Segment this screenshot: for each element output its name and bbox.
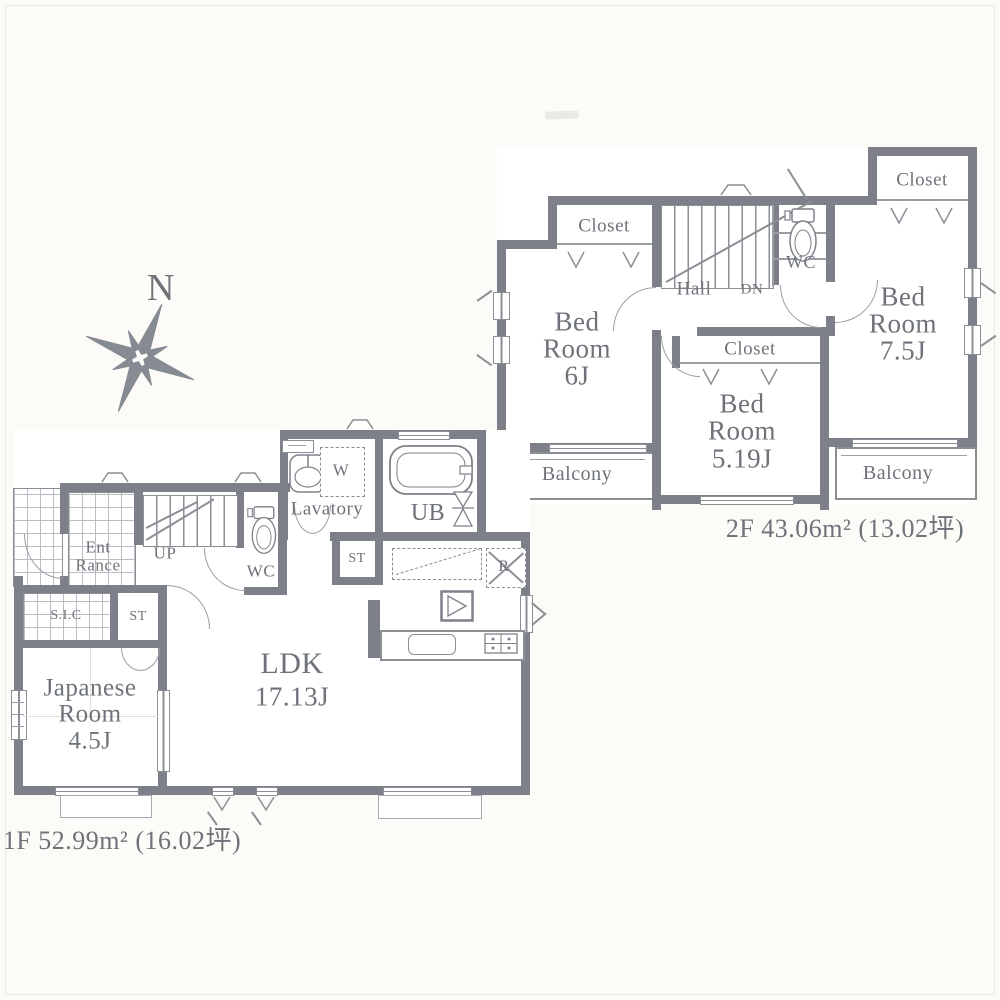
window bbox=[11, 690, 27, 740]
japanese-room-label: 4.5J bbox=[69, 729, 112, 754]
window bbox=[212, 787, 234, 796]
window-tick bbox=[207, 811, 217, 825]
kitchen-sink-icon bbox=[408, 634, 456, 655]
japanese-room-label: Japanese bbox=[44, 676, 137, 701]
wall bbox=[14, 576, 23, 690]
window bbox=[398, 431, 450, 440]
floor-1f-area-label: 1F 52.99m² (16.02坪) bbox=[3, 828, 241, 854]
vent-icon bbox=[233, 472, 263, 483]
wall bbox=[60, 483, 290, 492]
window-louver-line bbox=[12, 714, 24, 715]
bathtub-icon bbox=[388, 444, 474, 496]
vent-icon bbox=[345, 419, 375, 430]
wall bbox=[280, 430, 486, 439]
wall bbox=[368, 600, 380, 658]
window-tick-icon bbox=[211, 796, 233, 812]
sliding-door bbox=[157, 690, 170, 772]
unit-bath-label: UB bbox=[411, 501, 445, 525]
shoe-closet-label: S.I.C bbox=[50, 609, 81, 623]
toilet-icon bbox=[246, 503, 280, 559]
entrance-label: Rance bbox=[76, 557, 121, 574]
wall bbox=[244, 587, 287, 595]
window-tick bbox=[532, 613, 547, 626]
counter-icon-line bbox=[288, 445, 306, 446]
wall bbox=[60, 483, 68, 534]
storage-label: ST bbox=[348, 552, 365, 566]
vent-icon bbox=[100, 472, 130, 483]
window bbox=[256, 787, 278, 796]
window-tick-icon bbox=[255, 796, 277, 812]
lavatory-label: Lavatory bbox=[291, 500, 364, 519]
stove-icon bbox=[484, 633, 518, 654]
wall bbox=[110, 585, 118, 648]
floor-plan-page: N bbox=[0, 0, 1000, 1000]
window-louver-line bbox=[12, 726, 24, 727]
faucet-icon bbox=[452, 490, 474, 528]
storage-label: ST bbox=[129, 610, 146, 624]
window bbox=[520, 595, 533, 633]
wall bbox=[14, 640, 167, 648]
washer-label: W bbox=[333, 462, 350, 479]
dishwasher-icon bbox=[440, 590, 474, 622]
wall bbox=[280, 439, 288, 540]
floor-1f: Ent Rance UP WC S.I.C ST ST Japanese Roo… bbox=[0, 0, 1000, 1000]
japanese-room-label: Room bbox=[58, 702, 121, 727]
terrace-step bbox=[378, 795, 482, 819]
wall bbox=[14, 585, 167, 593]
terrace-step bbox=[60, 795, 152, 818]
fridge-label: R bbox=[498, 559, 509, 575]
entrance-label: Ent bbox=[85, 539, 110, 556]
wall bbox=[134, 492, 143, 545]
counter-icon bbox=[282, 440, 314, 453]
wall bbox=[330, 532, 530, 541]
window-tick bbox=[251, 811, 261, 825]
up-label: UP bbox=[154, 545, 177, 562]
wall bbox=[375, 540, 383, 585]
wall bbox=[477, 430, 486, 540]
ldk-label: 17.13J bbox=[255, 684, 329, 711]
wall bbox=[14, 738, 23, 793]
wc-label: WC bbox=[247, 563, 275, 580]
wall bbox=[158, 588, 167, 648]
ldk-label: LDK bbox=[260, 649, 323, 679]
wall bbox=[375, 430, 383, 540]
window-louver-line bbox=[12, 702, 24, 703]
